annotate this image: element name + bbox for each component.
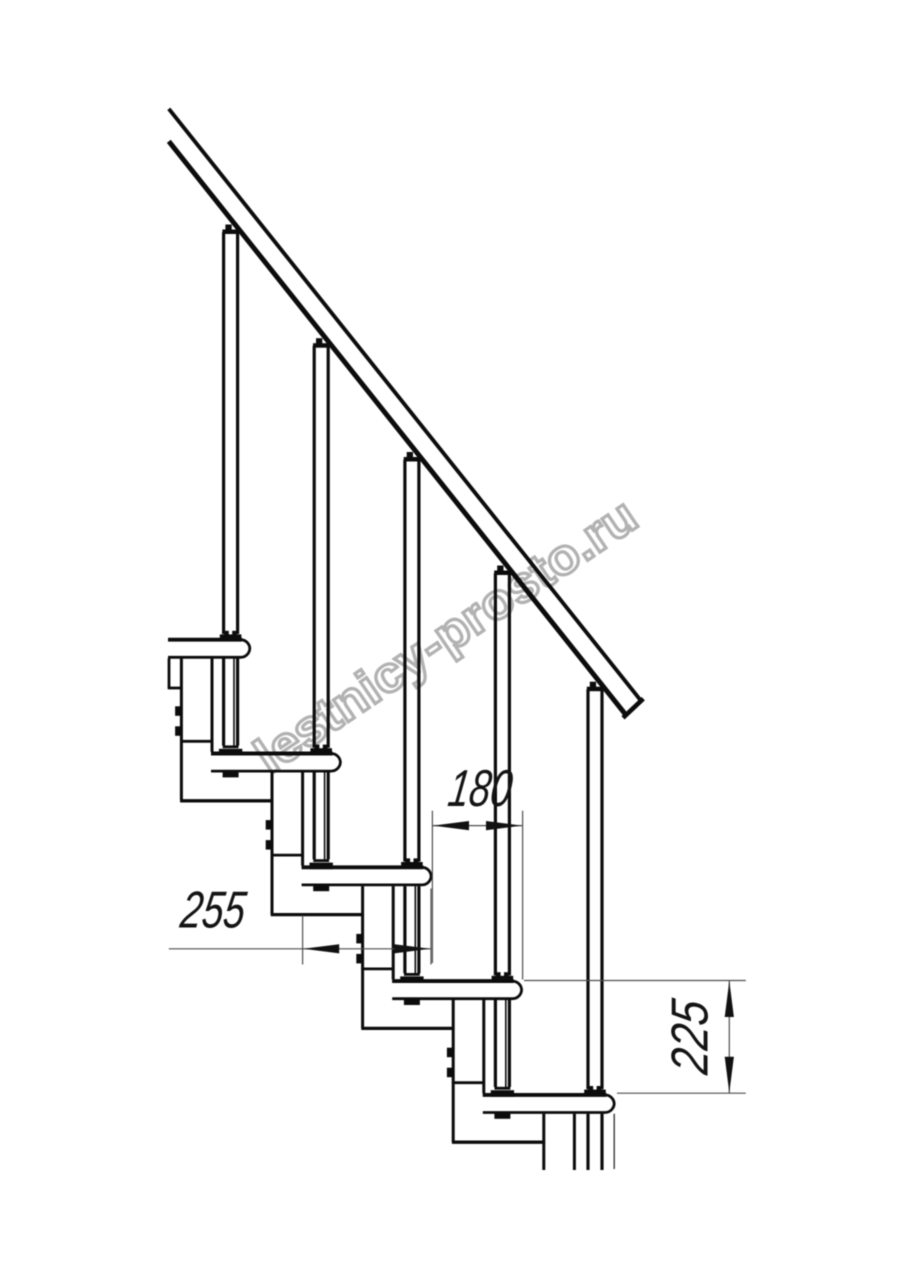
svg-text:225: 225 <box>662 995 720 1078</box>
svg-text:255: 255 <box>177 882 251 940</box>
svg-text:180: 180 <box>445 760 516 818</box>
